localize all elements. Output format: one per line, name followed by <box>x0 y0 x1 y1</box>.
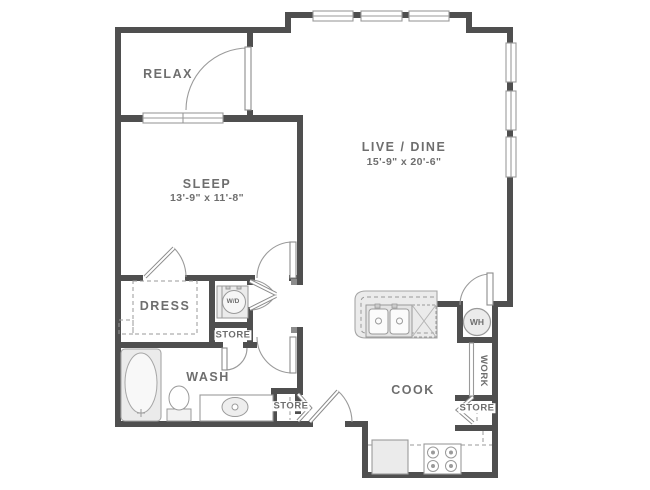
refrigerator-icon <box>372 440 408 474</box>
wall-relax-right-bot <box>247 110 253 122</box>
wall-relax-right-top <box>247 27 253 47</box>
sink-basin-left <box>369 309 388 334</box>
relax-door-leaf <box>245 47 251 110</box>
wall-cook-west <box>362 421 368 478</box>
label-store-entry: STORE <box>272 401 309 411</box>
label-washer-dryer: W/D <box>227 299 240 306</box>
label-water-heater: WH <box>470 318 484 327</box>
sink-basin-right <box>390 309 409 334</box>
wh-door-arc <box>460 274 491 305</box>
store-hall-door-leaf <box>222 348 227 370</box>
work-nook-wall <box>470 343 474 396</box>
toilet-tank <box>167 409 191 421</box>
wall-sleep-bottom-b <box>185 275 255 281</box>
dress-closet-notch <box>119 320 133 334</box>
wall-top-a <box>288 12 315 18</box>
wall-right-1 <box>507 27 513 45</box>
label-sleep: SLEEP <box>183 178 232 191</box>
bathtub-basin <box>125 353 157 413</box>
opening-jambs <box>291 279 297 333</box>
wall-store-entry-top <box>271 388 297 394</box>
label-work: WORK <box>478 354 488 388</box>
wall-hall-upper <box>297 115 303 285</box>
doors <box>145 47 493 423</box>
wall-top-relax <box>115 27 290 33</box>
sleep-door-leaf <box>290 242 296 278</box>
jamb-flare-upper <box>291 279 297 285</box>
label-sleep-dims: 13'-9" x 11'-8" <box>170 193 244 204</box>
wall-top-c <box>466 27 513 33</box>
floor-plan: RELAX SLEEP 13'-9" x 11'-8" LIVE / DINE … <box>0 0 650 490</box>
wall-store-kitchen-top <box>455 395 498 401</box>
utility-fixtures <box>217 286 491 336</box>
wash-door-leaf <box>290 337 296 373</box>
wall-relax-bottom-r <box>223 115 303 122</box>
wh-door-leaf <box>487 273 493 305</box>
label-wash: WASH <box>186 371 230 384</box>
store-hall-door-arc <box>225 348 247 370</box>
window-mullions <box>143 16 511 177</box>
windows <box>143 11 516 177</box>
wall-relax-bottom-l <box>115 115 143 122</box>
wall-entry-jamb <box>345 421 368 427</box>
label-store-hall: STORE <box>214 330 251 340</box>
wall-store-hall-top <box>215 322 253 328</box>
wall-dress-bottom <box>115 342 223 348</box>
wall-right-lower <box>492 301 498 478</box>
label-live-dine-dims: 15'-9" x 20'-6" <box>367 157 442 168</box>
wash-door-arc <box>257 337 293 373</box>
wall-sleep-bottom-a <box>115 275 143 281</box>
sleep-door-arc <box>257 242 293 278</box>
wall-right-4 <box>507 175 513 307</box>
floor-plan-drawing <box>0 0 650 490</box>
wall-left <box>115 27 121 427</box>
dress-door-arc <box>174 248 186 277</box>
wall-hall-lower <box>297 327 303 395</box>
label-cook: COOK <box>391 384 435 397</box>
wall-wh-left <box>457 301 463 342</box>
jamb-flare-lower <box>291 327 297 333</box>
bathroom-fixtures <box>121 349 273 421</box>
wall-store-kitchen-bottom <box>455 425 498 431</box>
label-dress: DRESS <box>140 300 191 313</box>
toilet-icon <box>169 386 189 410</box>
wall-wash-bottom <box>115 421 313 427</box>
label-store-kitchen: STORE <box>458 403 495 413</box>
vanity-drain <box>232 404 238 410</box>
entry-door-arc <box>338 391 352 422</box>
relax-door-arc <box>186 48 248 110</box>
wall-wh-bottom <box>457 337 498 343</box>
label-relax: RELAX <box>143 68 193 81</box>
label-live-dine: LIVE / DINE <box>362 141 447 154</box>
